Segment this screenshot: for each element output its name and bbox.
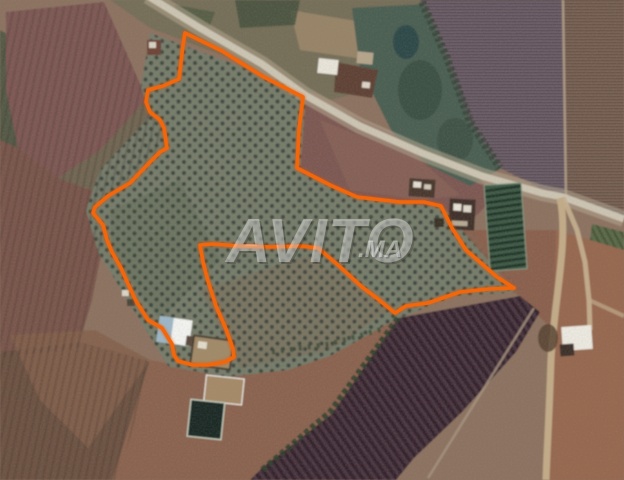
svg-text:.MA: .MA <box>358 236 402 263</box>
